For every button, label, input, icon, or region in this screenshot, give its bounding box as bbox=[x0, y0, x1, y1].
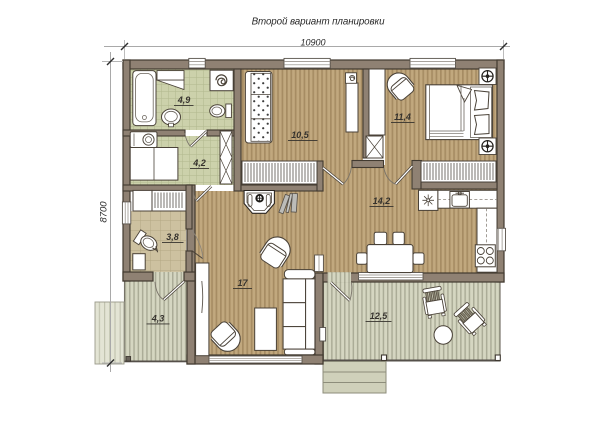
svg-text:Второй вариант планировки: Второй вариант планировки bbox=[252, 17, 386, 28]
svg-text:17: 17 bbox=[237, 278, 248, 288]
svg-text:3,8: 3,8 bbox=[166, 232, 179, 242]
svg-text:10900: 10900 bbox=[300, 37, 325, 47]
svg-text:10,5: 10,5 bbox=[291, 130, 310, 140]
svg-text:8700: 8700 bbox=[99, 201, 110, 223]
svg-text:4,3: 4,3 bbox=[151, 314, 165, 324]
svg-text:4,2: 4,2 bbox=[192, 158, 206, 168]
svg-text:11,4: 11,4 bbox=[394, 112, 411, 122]
svg-text:4,9: 4,9 bbox=[177, 95, 191, 105]
svg-text:12,5: 12,5 bbox=[370, 311, 389, 321]
svg-text:14,2: 14,2 bbox=[373, 196, 391, 206]
